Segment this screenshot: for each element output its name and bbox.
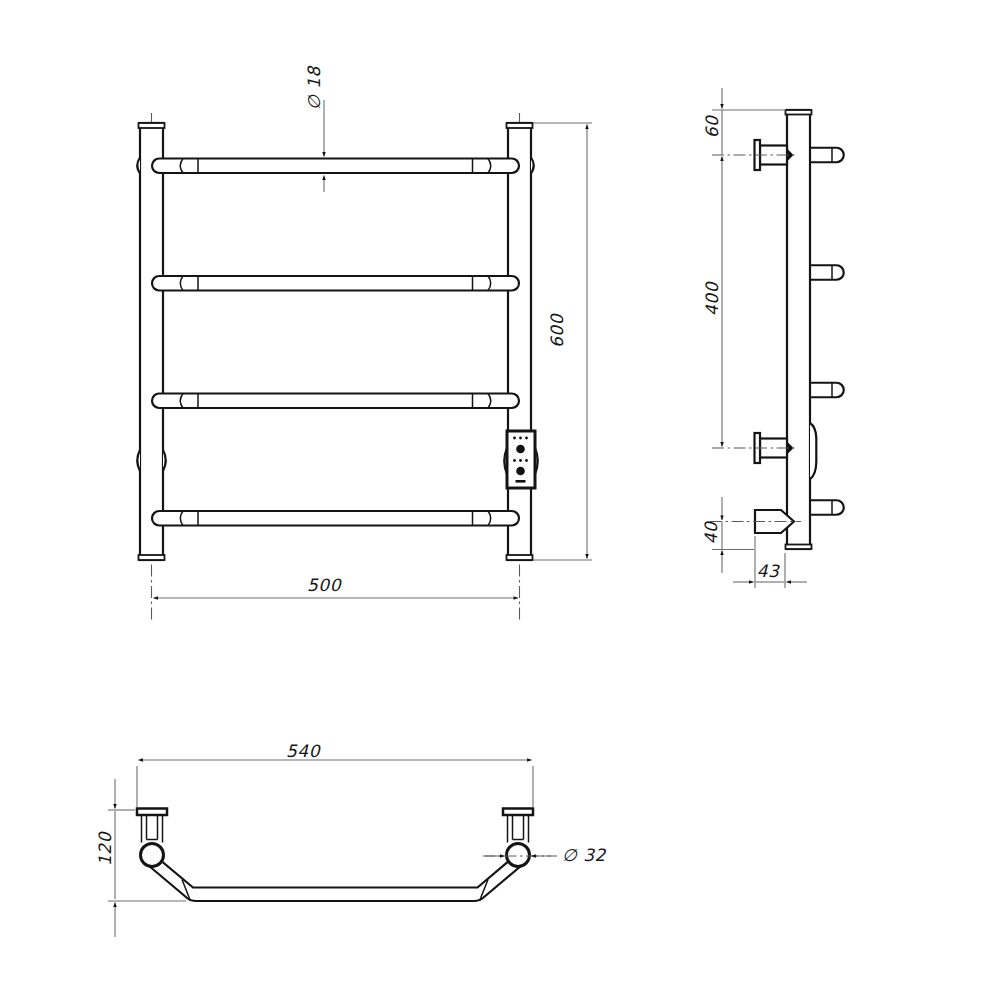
bottom-view [137,809,557,902]
front-bracket-bump [137,158,140,174]
dim-label-rail-width: 500 [307,575,341,595]
bottom-bracket-cups [142,815,529,843]
front-left-post [140,123,163,560]
side-post [787,110,810,549]
front-view [137,113,538,620]
control-unit-profile [810,423,816,479]
front-bracket-bump [163,450,166,471]
front-bar-bend-seams [180,159,491,526]
dim-label-overall-height: 600 [547,314,567,348]
dim-label-depth: 120 [95,832,115,866]
front-bars [152,159,519,526]
wall-plate [503,809,533,816]
front-right-post [508,123,531,560]
side-view [710,110,844,549]
control-button [516,445,525,454]
drawing-canvas [0,0,1000,1000]
control-button [516,467,525,476]
dim-label-top-to-bracket: 60 [702,116,722,139]
front-bracket-bump [137,450,140,471]
dim-label-wall-depth: 43 [757,561,780,581]
technical-drawing-page: ∅ 18 600 500 60 400 40 43 540 120 ∅ 32 [0,0,1000,1000]
dim-label-overall-width: 540 [286,741,320,761]
dim-label-post-diameter: ∅ 32 [562,845,606,865]
post-section [507,844,530,867]
bottom-tube [142,852,528,901]
front-bracket-bump [531,158,534,174]
dim-label-heater-offset: 40 [701,522,721,545]
control-unit [504,431,538,488]
post-section [141,844,164,867]
dim-label-bracket-spacing: 400 [702,282,722,316]
dim-label-bar-diameter: ∅ 18 [304,66,324,110]
wall-plate [137,809,167,816]
